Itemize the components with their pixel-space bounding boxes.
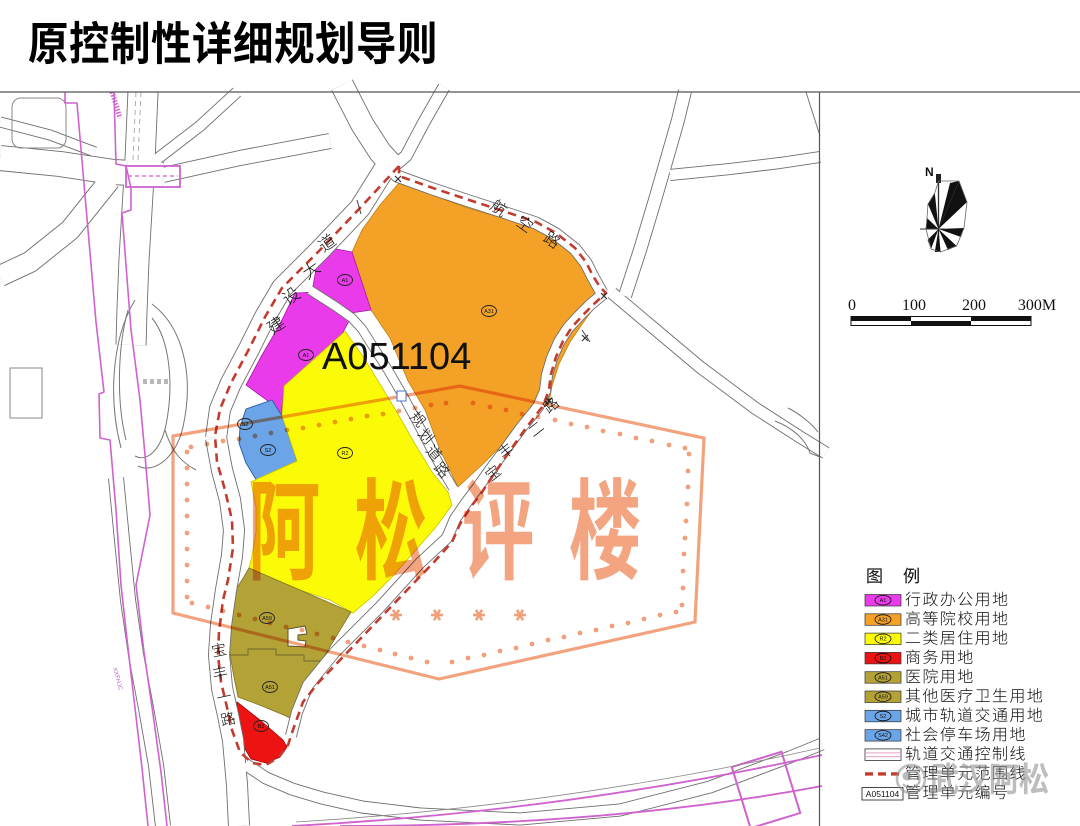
svg-text:100: 100 [902, 297, 926, 314]
svg-text:A1: A1 [342, 278, 349, 284]
svg-text:A1: A1 [880, 598, 887, 604]
svg-text:R2: R2 [879, 637, 886, 643]
svg-text:A51: A51 [265, 685, 275, 691]
svg-text:B2: B2 [880, 656, 887, 662]
svg-text:S42: S42 [878, 733, 888, 739]
svg-text:S2: S2 [880, 714, 887, 720]
svg-text:200: 200 [962, 297, 986, 314]
svg-text:A31: A31 [878, 617, 888, 623]
svg-text:R2: R2 [341, 451, 348, 457]
svg-text:S2: S2 [265, 448, 272, 454]
svg-text:300M: 300M [1018, 297, 1056, 314]
svg-text:B2: B2 [258, 724, 265, 730]
svg-text:A59: A59 [878, 695, 888, 701]
svg-text:A51: A51 [878, 675, 888, 681]
svg-text:A051104: A051104 [322, 336, 471, 378]
svg-text:A59: A59 [262, 616, 272, 622]
svg-text:0: 0 [848, 297, 856, 314]
svg-text:A31: A31 [484, 309, 494, 315]
svg-text:N: N [925, 165, 934, 179]
svg-text:A1: A1 [303, 353, 310, 359]
svg-text:S2: S2 [242, 422, 249, 428]
svg-text:A051104: A051104 [866, 789, 900, 799]
